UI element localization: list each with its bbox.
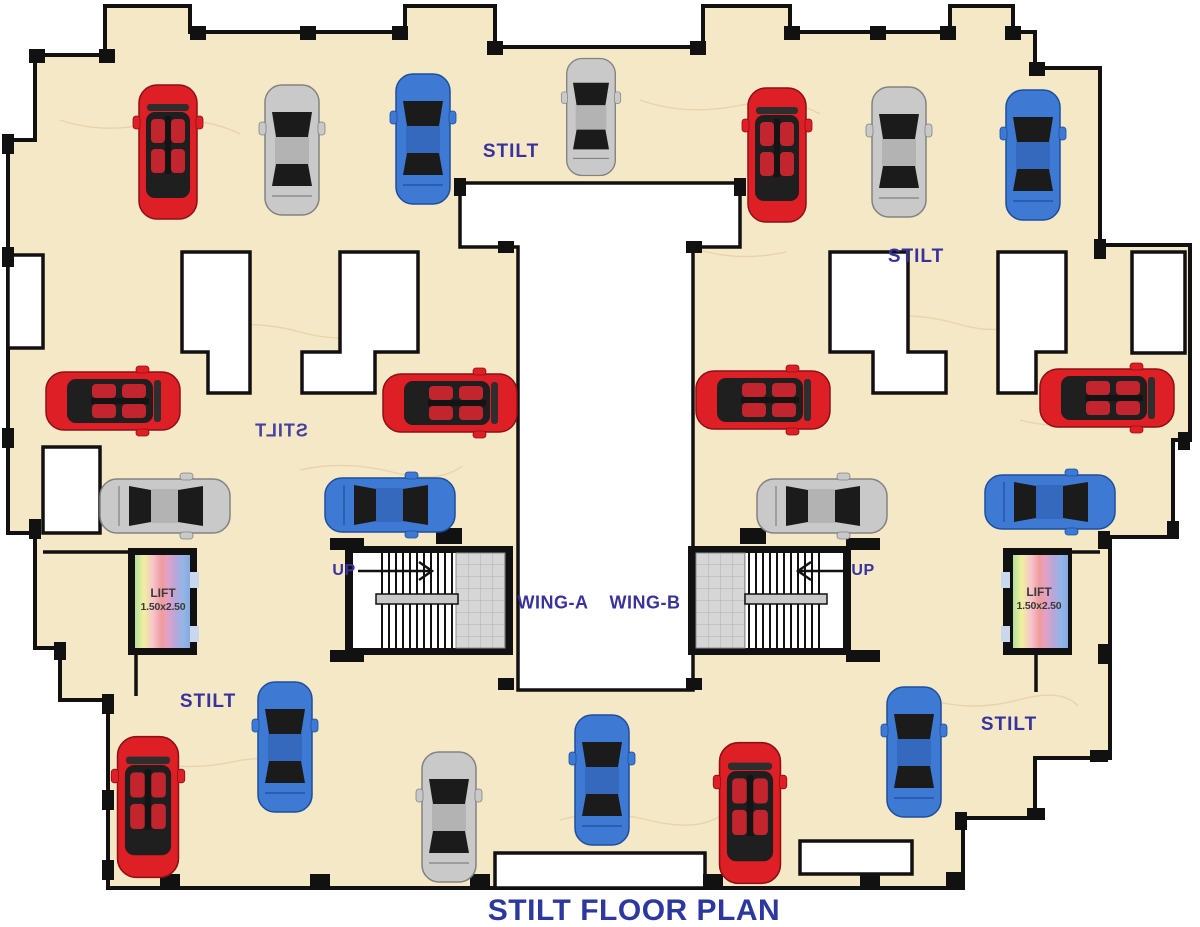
- car-silver-sedan: [866, 87, 932, 217]
- car-blue-sedan: [1000, 90, 1066, 220]
- stilt-floor-plan: STILT STILT STILT STILT STILT UP UP WING…: [0, 0, 1200, 927]
- lift-right-size: 1.50x2.50: [1017, 600, 1062, 613]
- label-stilt-top-left: STILT: [483, 141, 539, 163]
- label-wing-b: WING-B: [610, 593, 681, 614]
- lift-right-door: [1001, 572, 1010, 588]
- car-blue-sedan: [881, 687, 947, 817]
- car-silver-sedan: [259, 85, 325, 215]
- left-edge-notch-2: [43, 447, 100, 533]
- car-silver-sedan: [100, 473, 230, 539]
- car-silver-sedan: [757, 473, 887, 539]
- car-red-convertible: [111, 737, 185, 878]
- label-up-left: UP: [332, 562, 355, 580]
- label-stilt-mirrored: STILT: [254, 421, 308, 442]
- car-red-convertible: [696, 365, 830, 435]
- car-red-convertible: [383, 368, 517, 438]
- car-blue-sedan: [390, 74, 456, 204]
- left-edge-notch-1: [8, 255, 43, 348]
- floor-plan-svg: [0, 0, 1200, 927]
- lift-left-title: LIFT: [141, 586, 186, 601]
- stair-landing-left: [456, 553, 505, 648]
- lift-left-label: LIFT 1.50x2.50: [141, 586, 186, 614]
- car-blue-sedan: [252, 682, 318, 812]
- label-wing-a: WING-A: [518, 593, 589, 614]
- car-red-convertible: [46, 366, 180, 436]
- label-stilt-bottom-left: STILT: [180, 691, 236, 713]
- right-edge-notch: [1132, 252, 1185, 353]
- car-silver-sedan: [561, 58, 620, 175]
- bottom-center-notch: [495, 853, 705, 888]
- lift-right-label: LIFT 1.50x2.50: [1017, 585, 1062, 613]
- car-blue-sedan: [325, 472, 455, 538]
- lift-left-size: 1.50x2.50: [141, 601, 186, 614]
- car-red-convertible: [713, 743, 787, 884]
- bottom-right-notch: [800, 841, 912, 874]
- lift-left-door: [190, 572, 199, 588]
- stair-landing-right: [696, 553, 745, 648]
- label-stilt-top-right: STILT: [888, 246, 944, 268]
- page-title: STILT FLOOR PLAN: [488, 894, 780, 927]
- car-red-convertible: [1040, 363, 1174, 433]
- car-blue-sedan: [985, 469, 1115, 535]
- lift-right-title: LIFT: [1017, 585, 1062, 600]
- car-red-convertible: [742, 88, 812, 222]
- car-red-convertible: [133, 85, 203, 219]
- car-blue-sedan: [569, 715, 635, 845]
- label-stilt-bottom-right: STILT: [981, 714, 1037, 736]
- staircase-left: [345, 546, 513, 655]
- staircase-right: [688, 546, 851, 655]
- label-up-right: UP: [851, 562, 874, 580]
- car-silver-sedan: [416, 752, 482, 882]
